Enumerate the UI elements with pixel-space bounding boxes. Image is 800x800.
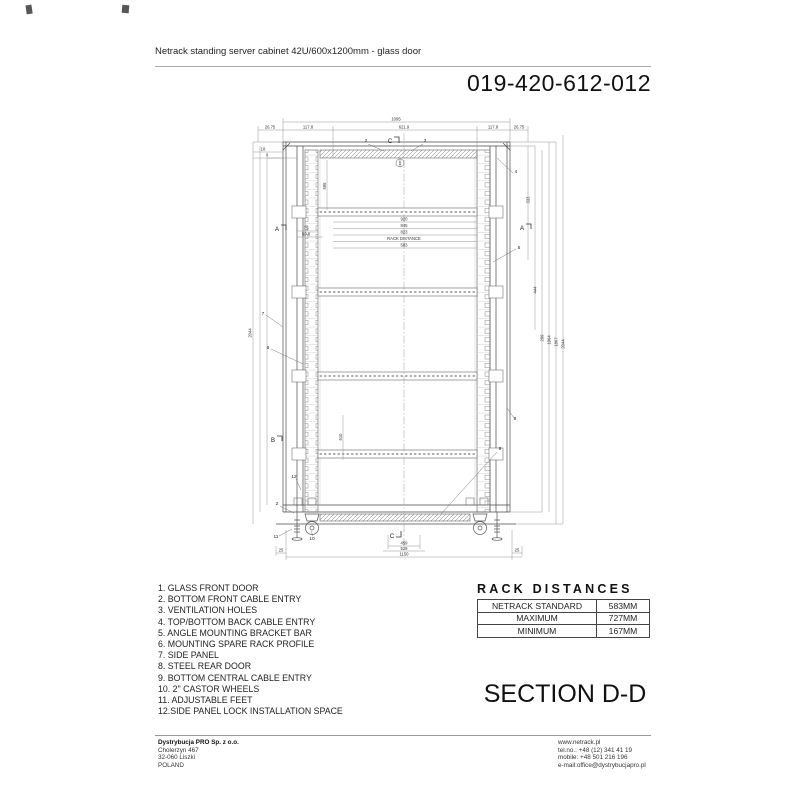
section-view-title: SECTION D-D xyxy=(479,680,651,709)
rack-distances-block: RACK DISTANCES NETRACK STANDARD583MMMAXI… xyxy=(477,582,650,638)
dimension-lines xyxy=(253,118,563,560)
dim-label: 26.75 xyxy=(514,125,525,130)
dim-label: 2044 xyxy=(248,328,253,338)
dim-label: RACK DISTANCE xyxy=(387,236,421,241)
dim-label: 583 xyxy=(401,243,409,248)
section-marker-label: B xyxy=(271,438,275,444)
dim-label: 299 xyxy=(540,334,545,342)
callout-label: 8 xyxy=(514,416,517,422)
dimension-labels: 109526.75117.8621.9117.826.751895957550.… xyxy=(248,117,566,557)
callout-label: 5 xyxy=(518,245,521,251)
dim-label: 1867 xyxy=(554,337,559,347)
section-drawing: 109526.75117.8621.9117.826.751895957550.… xyxy=(0,0,800,800)
bottom-cable-hatch xyxy=(320,514,470,521)
company-address: Cholerzyn 46732-060 LiszkiPOLAND xyxy=(158,747,239,770)
dim-label: 25 xyxy=(515,548,520,553)
footer-contact-block: www.netrack.pltel.no.: +48 (12) 341 41 1… xyxy=(558,739,646,769)
footer-company-block: Dystrybucja PRO Sp. z o.o. Cholerzyn 467… xyxy=(158,739,239,769)
footer-divider xyxy=(155,735,651,736)
bottom-cable-entries xyxy=(294,498,488,505)
dim-label: 444 xyxy=(533,286,538,294)
dim-label: 459 xyxy=(401,541,409,546)
callout-label: 4 xyxy=(515,169,518,175)
dim-label: 1150 xyxy=(399,552,409,557)
callout-label: 12 xyxy=(291,474,297,480)
dim-label: 117.8 xyxy=(303,125,314,130)
callout-label: 9 xyxy=(499,446,502,452)
rack-distances-table: NETRACK STANDARD583MMMAXIMUM727MMMINIMUM… xyxy=(477,599,650,638)
dim-label: 845 xyxy=(401,223,409,228)
dim-label: 1095 xyxy=(391,117,401,122)
dim-label: 117.8 xyxy=(488,125,499,130)
section-marker-label: A xyxy=(275,227,279,233)
dim-label: 25 xyxy=(279,548,284,553)
callout-label: 1 xyxy=(399,161,402,167)
print-artifact-marks xyxy=(25,5,129,15)
dim-label: 595 xyxy=(322,182,327,190)
dim-label: 920 xyxy=(401,217,409,222)
rack-profile-left xyxy=(305,150,318,512)
dim-label: 75 xyxy=(304,226,309,231)
section-marker-label: C xyxy=(390,534,395,540)
angle-brackets xyxy=(292,206,503,460)
section-marker-label: C xyxy=(388,139,393,145)
rack-profile-right xyxy=(477,150,490,512)
dim-label: 610 xyxy=(338,433,343,441)
mounting-rails xyxy=(318,208,477,458)
callout-label: 3 xyxy=(424,138,427,144)
company-name: Dystrybucja PRO Sp. z o.o. xyxy=(158,739,239,747)
rack-table-row: MINIMUM167MM xyxy=(478,625,650,638)
callout-label: 10 xyxy=(309,536,315,542)
top-vent-hatch xyxy=(320,150,477,158)
dim-label: 529 xyxy=(401,546,409,551)
callout-label: 6 xyxy=(267,345,270,351)
rack-table-row: NETRACK STANDARD583MM xyxy=(478,600,650,613)
dim-label: 9 xyxy=(266,153,269,158)
section-marker-label: A xyxy=(520,226,524,232)
parts-list: 1. GLASS FRONT DOOR 2. BOTTOM FRONT CABL… xyxy=(158,583,343,717)
rack-distances-title: RACK DISTANCES xyxy=(477,582,650,596)
dim-label: 26.75 xyxy=(265,125,276,130)
dim-label: 2044 xyxy=(561,339,566,349)
dim-label: 50.8 xyxy=(302,232,311,237)
dim-label: 18 xyxy=(261,147,266,152)
dim-label: 621.9 xyxy=(399,125,410,130)
dim-label: 1964 xyxy=(547,335,552,345)
rack-table-row: MAXIMUM727MM xyxy=(478,612,650,625)
dim-label: 823 xyxy=(401,230,409,235)
callout-label: 2 xyxy=(365,138,368,144)
dim-label: 333 xyxy=(526,196,531,204)
callout-label: 7 xyxy=(262,311,265,317)
callout-label: 11 xyxy=(274,534,279,540)
callout-label: 2 xyxy=(276,501,279,507)
